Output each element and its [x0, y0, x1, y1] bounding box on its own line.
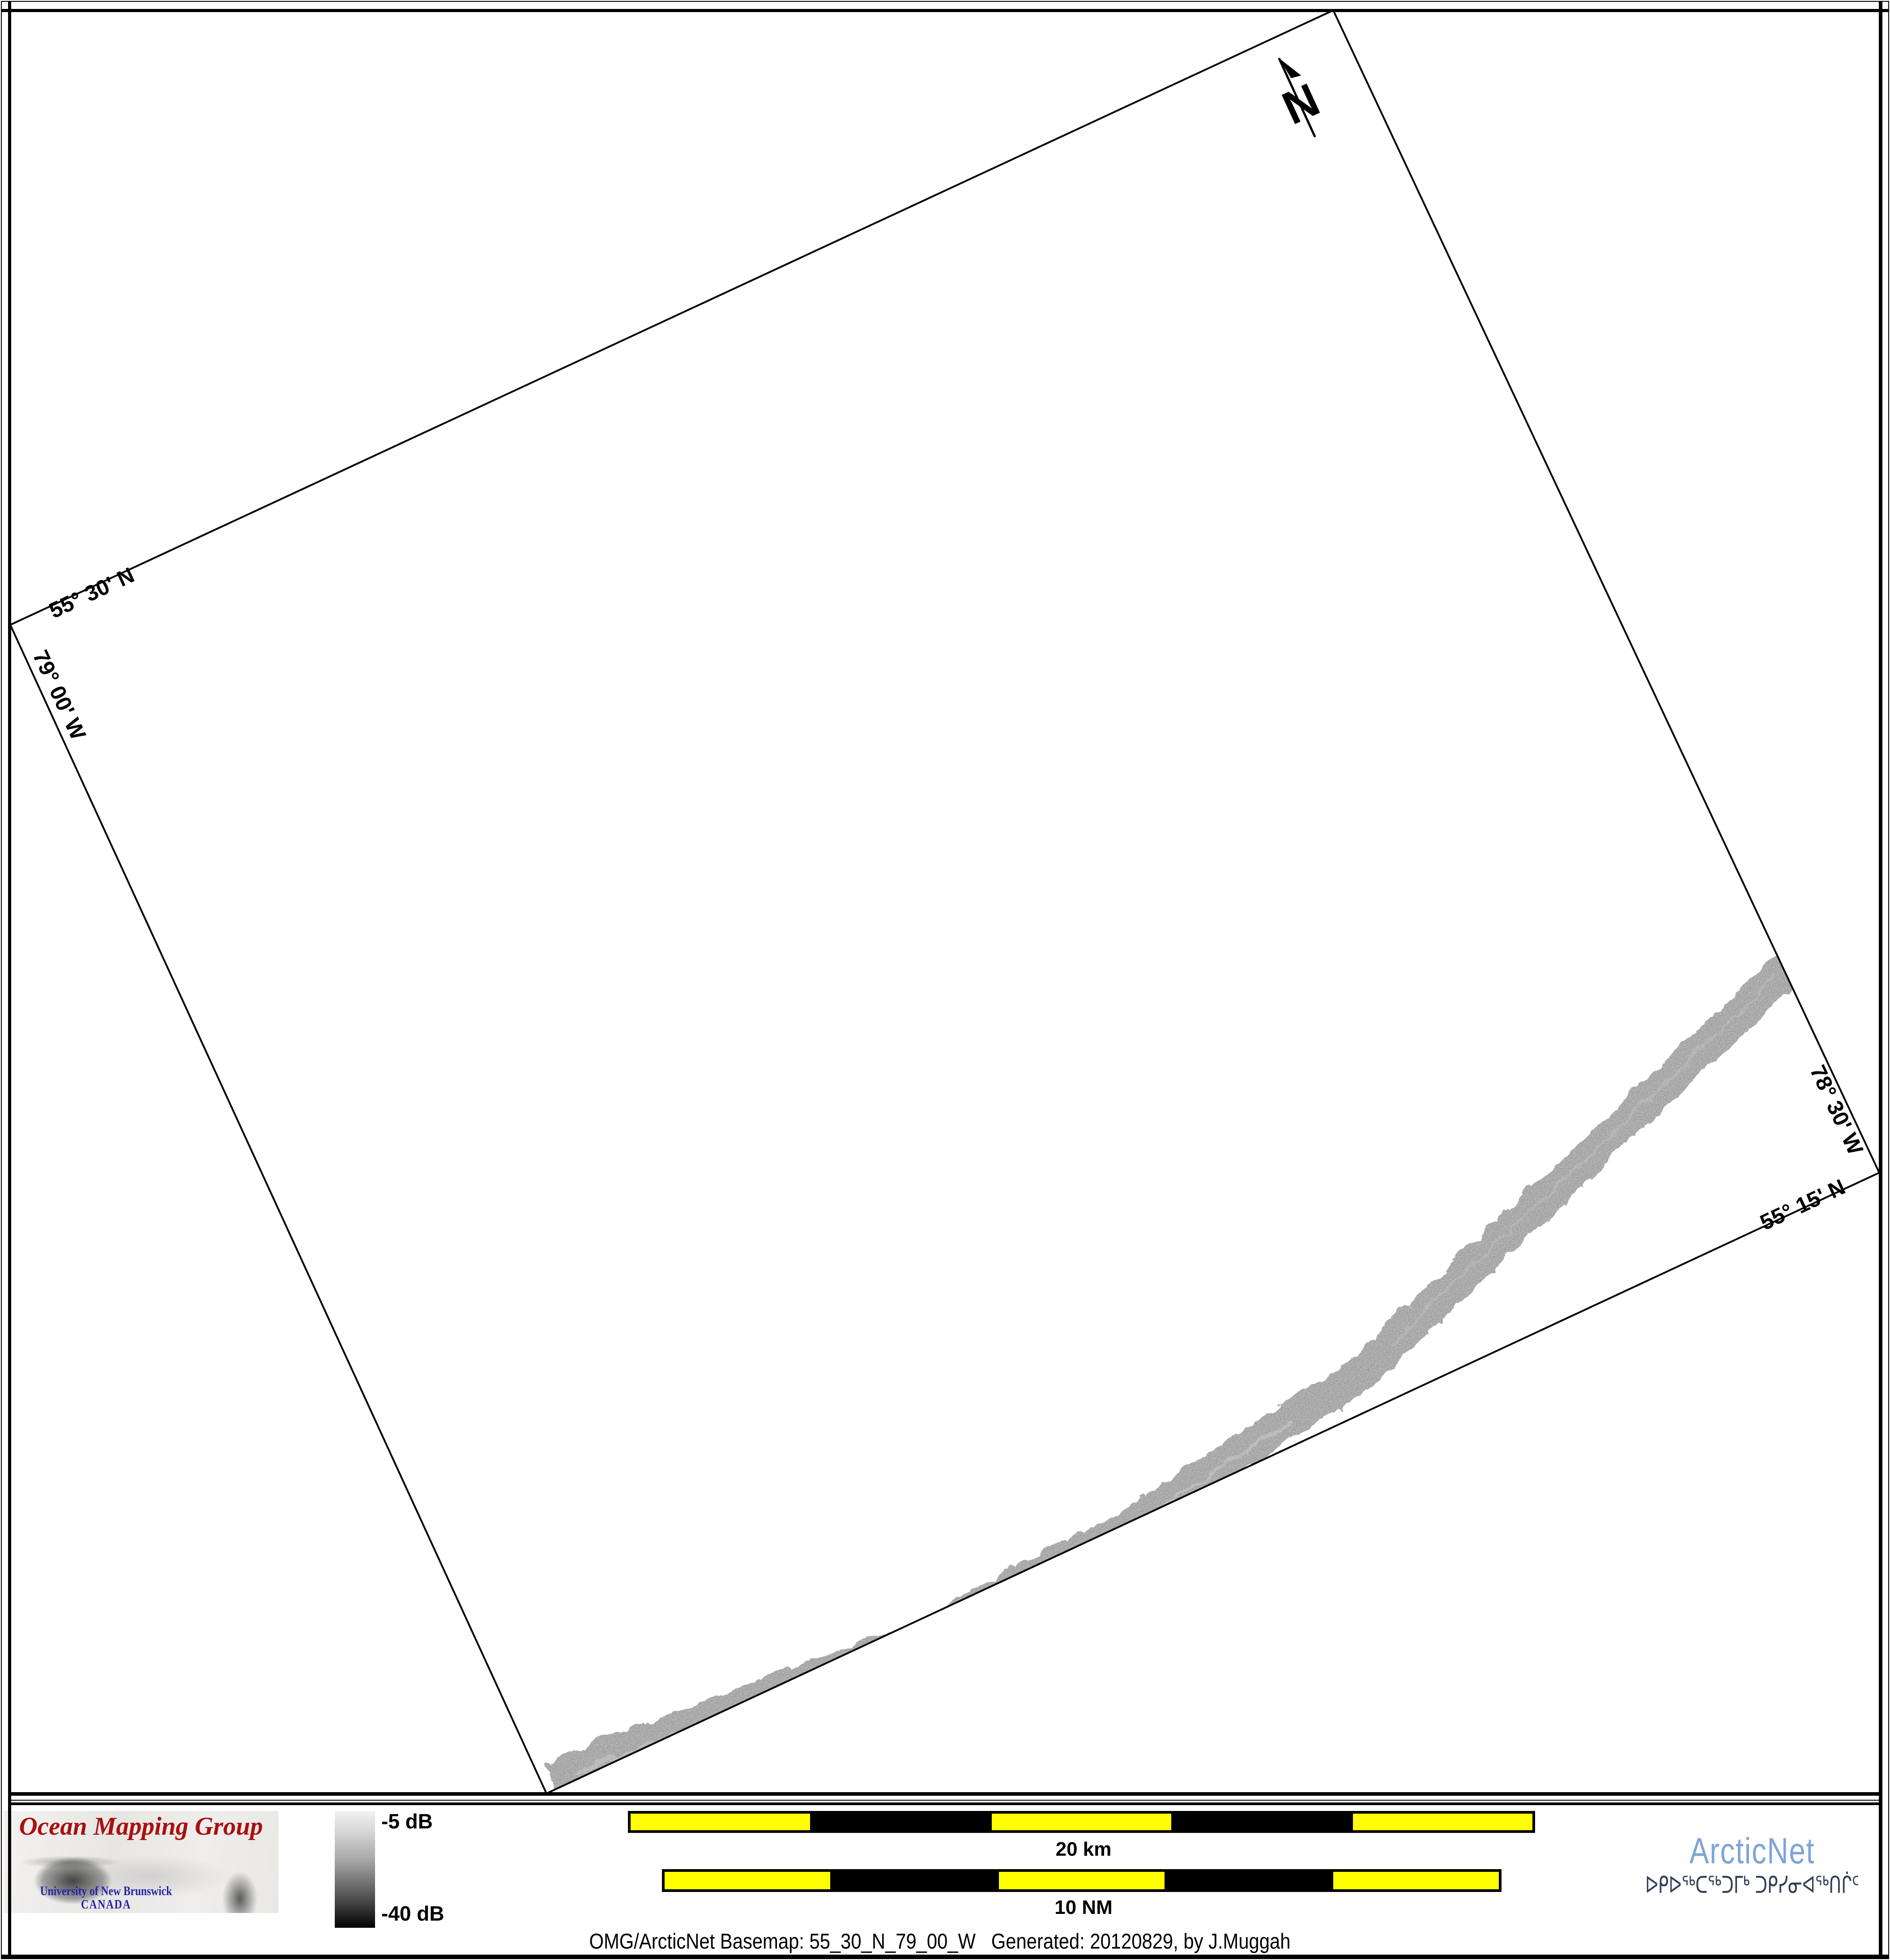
scalebar-km-segment	[990, 1812, 1173, 1832]
scalebar-nm-label: 10 NM	[1054, 1896, 1113, 1919]
omg-logo: Ocean Mapping Group University of New Br…	[4, 1811, 278, 1913]
omg-logo-country: CANADA	[20, 1898, 192, 1912]
graticule-boundary	[10, 10, 1879, 1793]
north-label: N	[1275, 73, 1327, 135]
page-frame-left	[8, 2, 11, 1958]
scalebar-nm-segment	[663, 1870, 832, 1891]
basemap-caption: OMG/ArcticNet Basemap: 55_30_N_79_00_W G…	[589, 1930, 1291, 1954]
scalebar-nm-segment	[832, 1870, 997, 1891]
arcticnet-logo: ArcticNet	[1689, 1830, 1815, 1872]
map-neatline-bottom	[8, 1792, 1882, 1796]
scalebar-km-segment	[811, 1812, 991, 1832]
scalebar-nm	[662, 1869, 1502, 1892]
footer-separator-thick	[8, 1802, 1882, 1805]
north-arrow: N	[1264, 51, 1331, 144]
scalebar-km	[628, 1811, 1535, 1833]
map-canvas: N	[0, 0, 1890, 1960]
colorbar-max-label: -5 dB	[381, 1809, 433, 1833]
scalebar-km-segment	[1352, 1812, 1534, 1832]
scalebar-nm-segment	[1332, 1870, 1500, 1891]
page-frame-top	[2, 9, 1888, 12]
basemap-sheet: N 55° 30' N 79° 00' W 78° 30' W 55° 15' …	[0, 0, 1890, 1960]
page-frame-bottom	[2, 1955, 1888, 1959]
page-frame-right	[1879, 2, 1882, 1958]
colorbar-min-label: -40 dB	[381, 1901, 444, 1926]
scalebar-km-segment	[1173, 1812, 1352, 1832]
scalebar-nm-segment	[998, 1870, 1166, 1891]
omg-logo-title: Ocean Mapping Group	[4, 1812, 278, 1841]
footer-separator-thin	[8, 1800, 1882, 1801]
backscatter-colorbar	[335, 1811, 375, 1928]
arcticnet-inuktitut-text: ᐅᑭᐅᖅᑕᖅᑐᒥᒃ ᑐᑭᓯᓂᐊᖅᑎᒌᑦ	[1645, 1872, 1859, 1899]
scalebar-km-label: 20 km	[1056, 1838, 1112, 1861]
omg-logo-university: University of New Brunswick	[20, 1884, 192, 1899]
sonar-swath-track	[548, 954, 1797, 1778]
scalebar-km-segment	[629, 1812, 811, 1832]
scalebar-nm-segment	[1166, 1870, 1331, 1891]
